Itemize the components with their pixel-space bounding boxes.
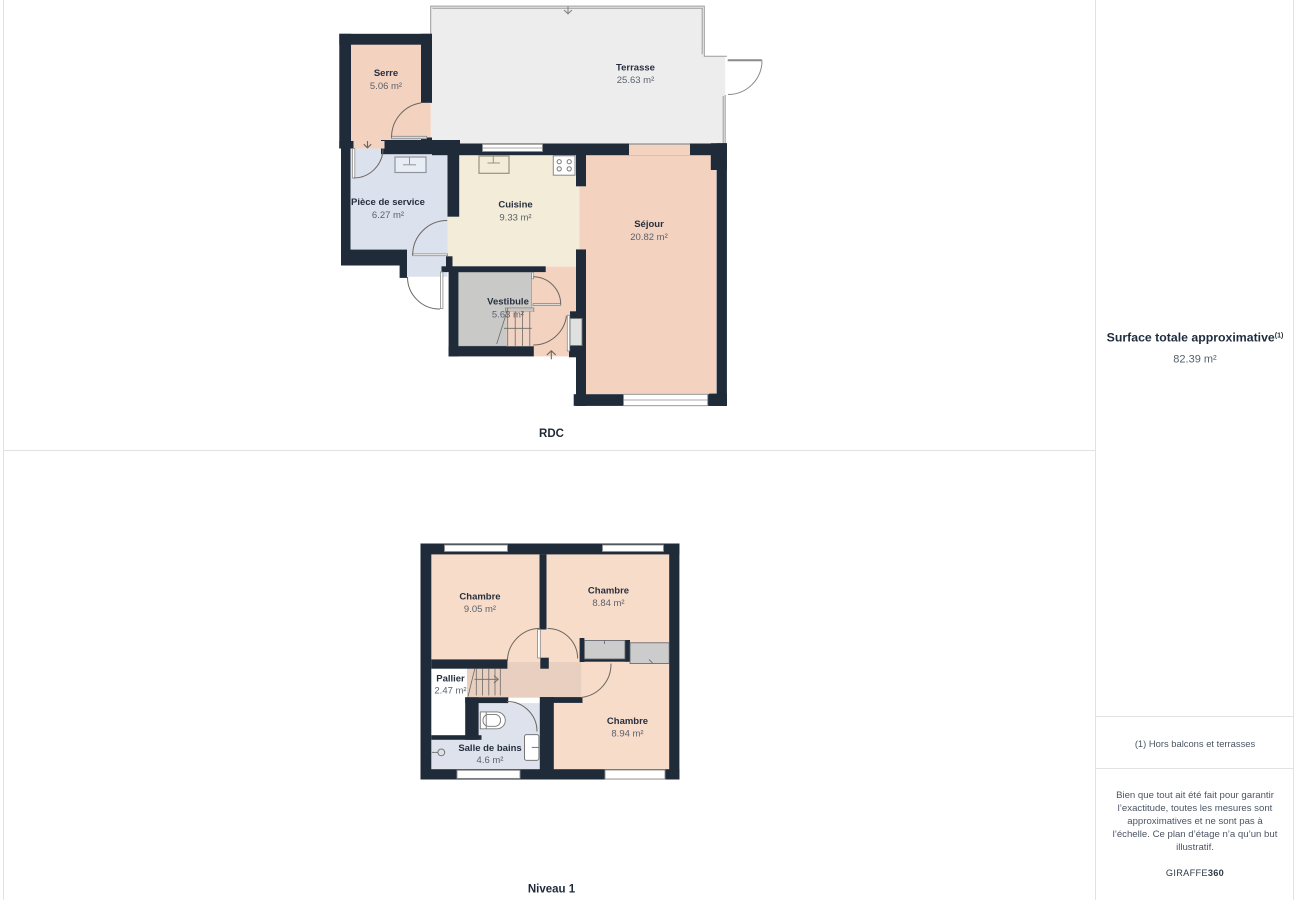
svg-text:illustratif.: illustratif.: [1176, 842, 1214, 853]
svg-text:9.33 m²: 9.33 m²: [499, 213, 531, 224]
svg-text:2.47 m²: 2.47 m²: [434, 686, 466, 697]
svg-text:RDC: RDC: [539, 428, 564, 440]
svg-text:l’exactitude, toutes les mesur: l’exactitude, toutes les mesures sont: [1118, 803, 1273, 814]
svg-text:25.63 m²: 25.63 m²: [617, 75, 655, 86]
svg-text:(1) Hors balcons et terrasses: (1) Hors balcons et terrasses: [1135, 738, 1256, 749]
svg-text:Cuisine: Cuisine: [498, 200, 532, 211]
svg-text:Pièce de service: Pièce de service: [351, 197, 425, 208]
svg-text:approximatives et ne sont pas: approximatives et ne sont pas à: [1127, 816, 1263, 827]
svg-text:8.84 m²: 8.84 m²: [592, 598, 624, 609]
svg-text:Chambre: Chambre: [588, 586, 629, 597]
svg-text:6.27 m²: 6.27 m²: [372, 210, 404, 221]
svg-text:Surface totale approximative(1: Surface totale approximative(1): [1107, 331, 1284, 345]
svg-text:Bien que tout ait été fait pou: Bien que tout ait été fait pour garantir: [1116, 790, 1275, 801]
svg-text:l’échelle. Ce plan d’étage n’a: l’échelle. Ce plan d’étage n’a qu’un but: [1113, 829, 1278, 840]
svg-text:GIRAFFE360: GIRAFFE360: [1166, 868, 1224, 878]
svg-text:Serre: Serre: [374, 68, 398, 79]
svg-text:Niveau 1: Niveau 1: [528, 884, 576, 896]
svg-text:Salle de bains: Salle de bains: [458, 743, 521, 754]
svg-text:Séjour: Séjour: [634, 219, 664, 230]
svg-text:Vestibule: Vestibule: [487, 297, 529, 308]
svg-text:8.94 m²: 8.94 m²: [611, 729, 643, 740]
svg-text:Chambre: Chambre: [459, 592, 500, 603]
svg-text:Terrasse: Terrasse: [616, 63, 655, 74]
svg-text:5.06 m²: 5.06 m²: [370, 81, 402, 92]
svg-text:4.6 m²: 4.6 m²: [477, 755, 504, 766]
svg-text:5.63 m²: 5.63 m²: [492, 310, 524, 321]
svg-text:9.05 m²: 9.05 m²: [464, 604, 496, 615]
svg-text:Pallier: Pallier: [436, 674, 465, 685]
svg-text:Chambre: Chambre: [607, 716, 648, 727]
svg-text:20.82 m²: 20.82 m²: [630, 232, 668, 243]
svg-text:82.39 m²: 82.39 m²: [1173, 354, 1217, 366]
